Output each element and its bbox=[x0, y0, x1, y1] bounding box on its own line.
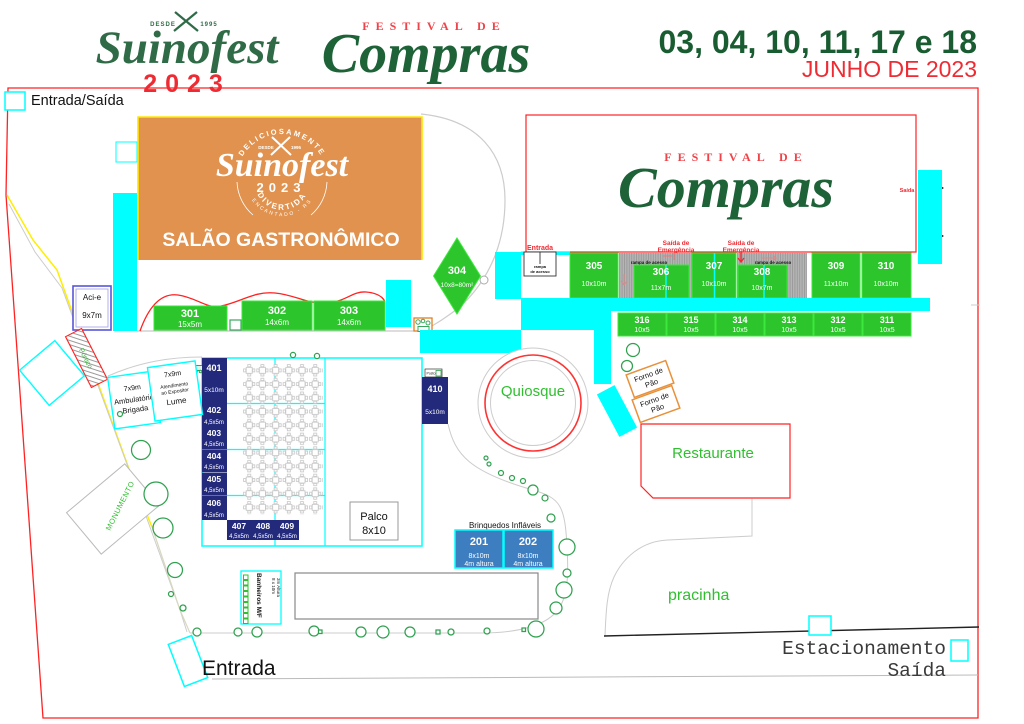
svg-text:10x5: 10x5 bbox=[683, 327, 698, 334]
svg-text:303: 303 bbox=[340, 305, 358, 317]
svg-text:9x7m: 9x7m bbox=[82, 311, 102, 320]
svg-text:10x8=80m²: 10x8=80m² bbox=[441, 282, 475, 289]
svg-text:4,5x5m: 4,5x5m bbox=[229, 534, 249, 540]
svg-text:315: 315 bbox=[683, 315, 698, 325]
svg-text:4,5x5m: 4,5x5m bbox=[277, 534, 297, 540]
svg-text:Palco: Palco bbox=[360, 511, 388, 523]
svg-text:11x10m: 11x10m bbox=[824, 281, 849, 288]
svg-text:03, 04, 10, 11, 17 e 18: 03, 04, 10, 11, 17 e 18 bbox=[659, 24, 978, 60]
svg-text:5x10m: 5x10m bbox=[204, 387, 224, 394]
svg-text:302: 302 bbox=[268, 305, 286, 317]
svg-text:309: 309 bbox=[828, 261, 845, 272]
svg-text:14x6m: 14x6m bbox=[337, 318, 361, 327]
svg-text:15x5m: 15x5m bbox=[178, 320, 202, 329]
svg-text:Entrada: Entrada bbox=[202, 657, 276, 680]
svg-text:8x10m: 8x10m bbox=[517, 553, 538, 560]
svg-text:5x10m: 5x10m bbox=[425, 409, 445, 416]
svg-text:Restaurante: Restaurante bbox=[672, 445, 754, 462]
svg-text:404: 404 bbox=[207, 451, 221, 461]
svg-text:4,5x5m: 4,5x5m bbox=[253, 534, 273, 540]
svg-text:14x6m: 14x6m bbox=[265, 318, 289, 327]
svg-text:304: 304 bbox=[448, 265, 467, 277]
svg-text:10x10m: 10x10m bbox=[874, 281, 899, 288]
svg-text:de acesso: de acesso bbox=[530, 269, 550, 274]
svg-text:Entrada: Entrada bbox=[527, 245, 553, 252]
svg-text:Compras: Compras bbox=[322, 23, 531, 85]
svg-text:10x5: 10x5 bbox=[732, 327, 747, 334]
svg-text:4,5x5m: 4,5x5m bbox=[204, 442, 224, 448]
svg-text:4,5x5m: 4,5x5m bbox=[204, 513, 224, 519]
svg-text:10x5: 10x5 bbox=[634, 327, 649, 334]
svg-text:Banheiros M/F: Banheiros M/F bbox=[255, 573, 262, 618]
svg-text:310: 310 bbox=[878, 261, 895, 272]
svg-text:301: 301 bbox=[181, 308, 199, 320]
svg-text:Brinquedos Infláveis: Brinquedos Infláveis bbox=[469, 521, 541, 530]
svg-text:10x5: 10x5 bbox=[781, 327, 796, 334]
svg-text:314: 314 bbox=[732, 315, 747, 325]
svg-text:408: 408 bbox=[256, 521, 270, 531]
svg-text:Saída de: Saída de bbox=[663, 240, 690, 247]
svg-text:10x7m: 10x7m bbox=[751, 285, 772, 292]
svg-text:407: 407 bbox=[232, 521, 246, 531]
svg-text:316: 316 bbox=[634, 315, 649, 325]
svg-text:409: 409 bbox=[280, 521, 294, 531]
svg-text:Posto: Posto bbox=[427, 372, 436, 376]
svg-text:10x10m: 10x10m bbox=[702, 281, 727, 288]
svg-text:10x10m: 10x10m bbox=[582, 281, 607, 288]
svg-text:8x10: 8x10 bbox=[362, 525, 386, 537]
svg-text:4m altura: 4m altura bbox=[464, 561, 493, 568]
svg-text:401: 401 bbox=[206, 363, 221, 373]
svg-text:403: 403 bbox=[207, 428, 221, 438]
svg-text:202: 202 bbox=[519, 536, 537, 548]
svg-text:402: 402 bbox=[207, 405, 221, 415]
svg-text:4,5x5m: 4,5x5m bbox=[204, 420, 224, 426]
svg-text:312: 312 bbox=[830, 315, 845, 325]
svg-text:pracinha: pracinha bbox=[668, 587, 729, 604]
svg-text:Compras: Compras bbox=[618, 155, 834, 220]
svg-text:201: 201 bbox=[470, 536, 488, 548]
svg-text:11x7m: 11x7m bbox=[651, 285, 672, 292]
svg-text:Entrada/Saída: Entrada/Saída bbox=[31, 93, 125, 109]
svg-text:8 x 10m: 8 x 10m bbox=[271, 578, 276, 594]
svg-text:308: 308 bbox=[754, 267, 771, 278]
svg-text:307: 307 bbox=[706, 261, 723, 272]
svg-text:Saída: Saída bbox=[900, 188, 916, 194]
svg-text:306: 306 bbox=[653, 267, 670, 278]
svg-text:410: 410 bbox=[427, 384, 442, 394]
svg-text:305: 305 bbox=[586, 261, 603, 272]
svg-text:8x10m: 8x10m bbox=[468, 553, 489, 560]
svg-text:Emergência: Emergência bbox=[658, 247, 695, 254]
svg-text:2023: 2023 bbox=[143, 70, 231, 98]
svg-text:Saída: Saída bbox=[887, 660, 946, 682]
svg-text:3m Altura: 3m Altura bbox=[276, 578, 281, 598]
svg-text:Suinofest: Suinofest bbox=[216, 147, 350, 184]
svg-text:4m altura: 4m altura bbox=[513, 561, 542, 568]
svg-text:406: 406 bbox=[207, 498, 221, 508]
svg-text:4,5x5m: 4,5x5m bbox=[204, 465, 224, 471]
svg-text:JUNHO DE 2023: JUNHO DE 2023 bbox=[802, 56, 977, 82]
svg-text:Saída de: Saída de bbox=[728, 240, 755, 247]
svg-text:Estacionamento: Estacionamento bbox=[782, 638, 946, 660]
svg-text:rampa de acesso: rampa de acesso bbox=[631, 260, 668, 265]
svg-text:4,5x5m: 4,5x5m bbox=[204, 488, 224, 494]
svg-text:10x5: 10x5 bbox=[879, 327, 894, 334]
svg-text:Aci-e: Aci-e bbox=[83, 293, 102, 302]
svg-text:Suinofest: Suinofest bbox=[96, 22, 281, 74]
svg-text:SALÃO GASTRONÔMICO: SALÃO GASTRONÔMICO bbox=[162, 227, 399, 251]
svg-text:Quiosque: Quiosque bbox=[501, 383, 565, 400]
svg-text:311: 311 bbox=[880, 315, 895, 325]
svg-text:313: 313 bbox=[781, 315, 796, 325]
svg-text:405: 405 bbox=[207, 474, 221, 484]
svg-text:10x5: 10x5 bbox=[830, 327, 845, 334]
